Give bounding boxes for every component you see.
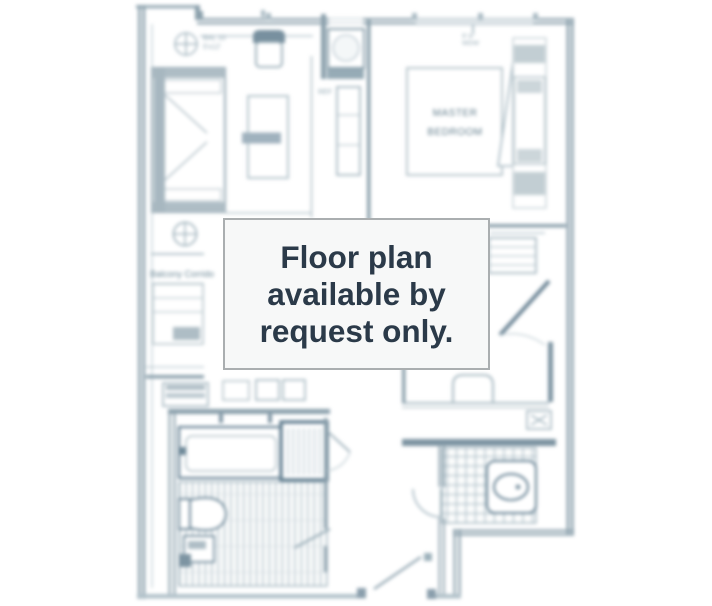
- svg-text:5'x12': 5'x12': [203, 44, 221, 51]
- svg-text:MASTER: MASTER: [433, 108, 478, 119]
- svg-text:BEDROOM: BEDROOM: [427, 127, 482, 138]
- svg-text:REF: REF: [318, 89, 332, 96]
- svg-text:Balcony Corrido: Balcony Corrido: [150, 269, 214, 279]
- svg-text:WDW: WDW: [462, 40, 480, 47]
- svg-text:BAL 10: BAL 10: [203, 35, 226, 42]
- svg-text:9'-8": 9'-8": [462, 33, 476, 40]
